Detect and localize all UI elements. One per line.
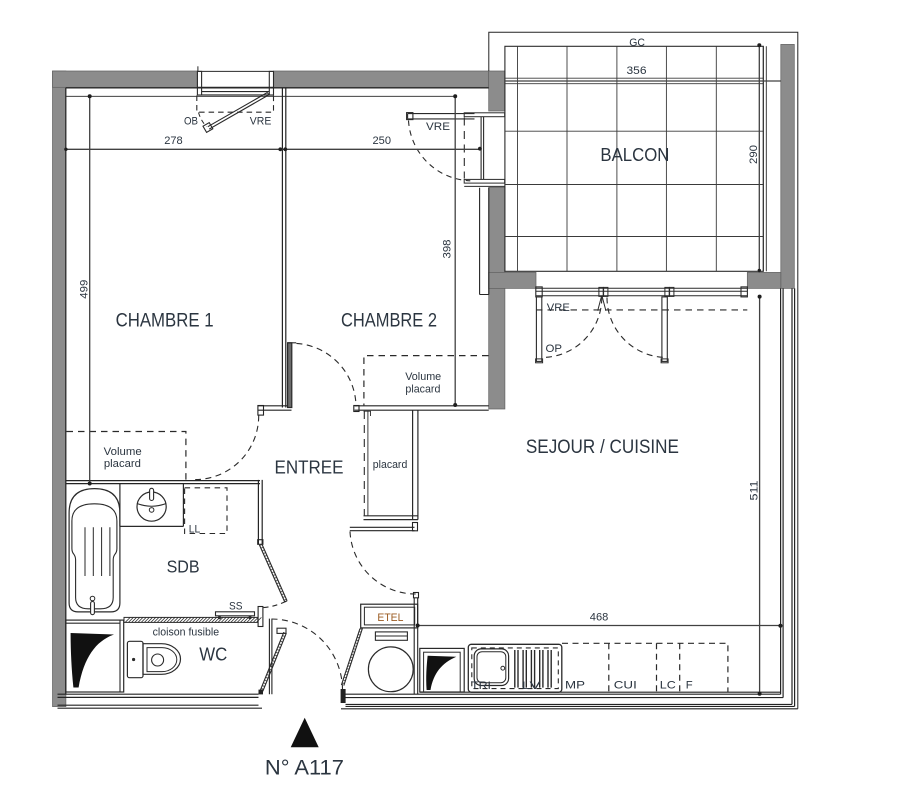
svg-text:468: 468 xyxy=(590,611,609,623)
svg-text:N° A117: N° A117 xyxy=(265,756,344,779)
svg-text:placard: placard xyxy=(373,459,408,471)
svg-text:GC: GC xyxy=(629,37,645,49)
svg-text:placard: placard xyxy=(405,384,440,396)
svg-text:TRI: TRI xyxy=(471,680,491,692)
svg-text:F: F xyxy=(686,680,693,692)
svg-text:placard: placard xyxy=(104,458,141,470)
svg-text:SEJOUR / CUISINE: SEJOUR / CUISINE xyxy=(526,437,679,458)
svg-text:BALCON: BALCON xyxy=(600,144,669,165)
svg-text:LV: LV xyxy=(522,680,542,692)
svg-text:499: 499 xyxy=(79,280,91,299)
svg-text:cloison fusible: cloison fusible xyxy=(153,626,220,638)
svg-text:VRE: VRE xyxy=(250,115,272,127)
svg-text:CHAMBRE 2: CHAMBRE 2 xyxy=(341,310,437,331)
svg-text:LL: LL xyxy=(189,524,201,536)
svg-text:356: 356 xyxy=(627,65,647,77)
svg-text:LC: LC xyxy=(660,680,676,692)
svg-text:SDB: SDB xyxy=(167,557,200,577)
svg-text:OP: OP xyxy=(546,343,563,355)
svg-text:VRE: VRE xyxy=(426,121,450,133)
svg-text:250: 250 xyxy=(373,135,392,147)
svg-text:WC: WC xyxy=(199,643,227,664)
svg-text:Volume: Volume xyxy=(104,446,142,458)
svg-text:Volume: Volume xyxy=(405,371,441,383)
svg-text:CHAMBRE 1: CHAMBRE 1 xyxy=(116,310,214,331)
svg-text:VRE: VRE xyxy=(547,302,570,314)
svg-text:290: 290 xyxy=(748,145,760,164)
svg-text:CUI: CUI xyxy=(614,680,637,692)
svg-text:ENTREE: ENTREE xyxy=(275,458,344,478)
svg-text:278: 278 xyxy=(164,135,183,147)
svg-text:SS: SS xyxy=(229,601,243,613)
svg-text:OB: OB xyxy=(184,115,198,127)
svg-text:398: 398 xyxy=(442,240,454,259)
svg-text:ETEL: ETEL xyxy=(377,612,403,624)
svg-text:511: 511 xyxy=(748,481,760,501)
svg-text:MP: MP xyxy=(565,680,585,692)
